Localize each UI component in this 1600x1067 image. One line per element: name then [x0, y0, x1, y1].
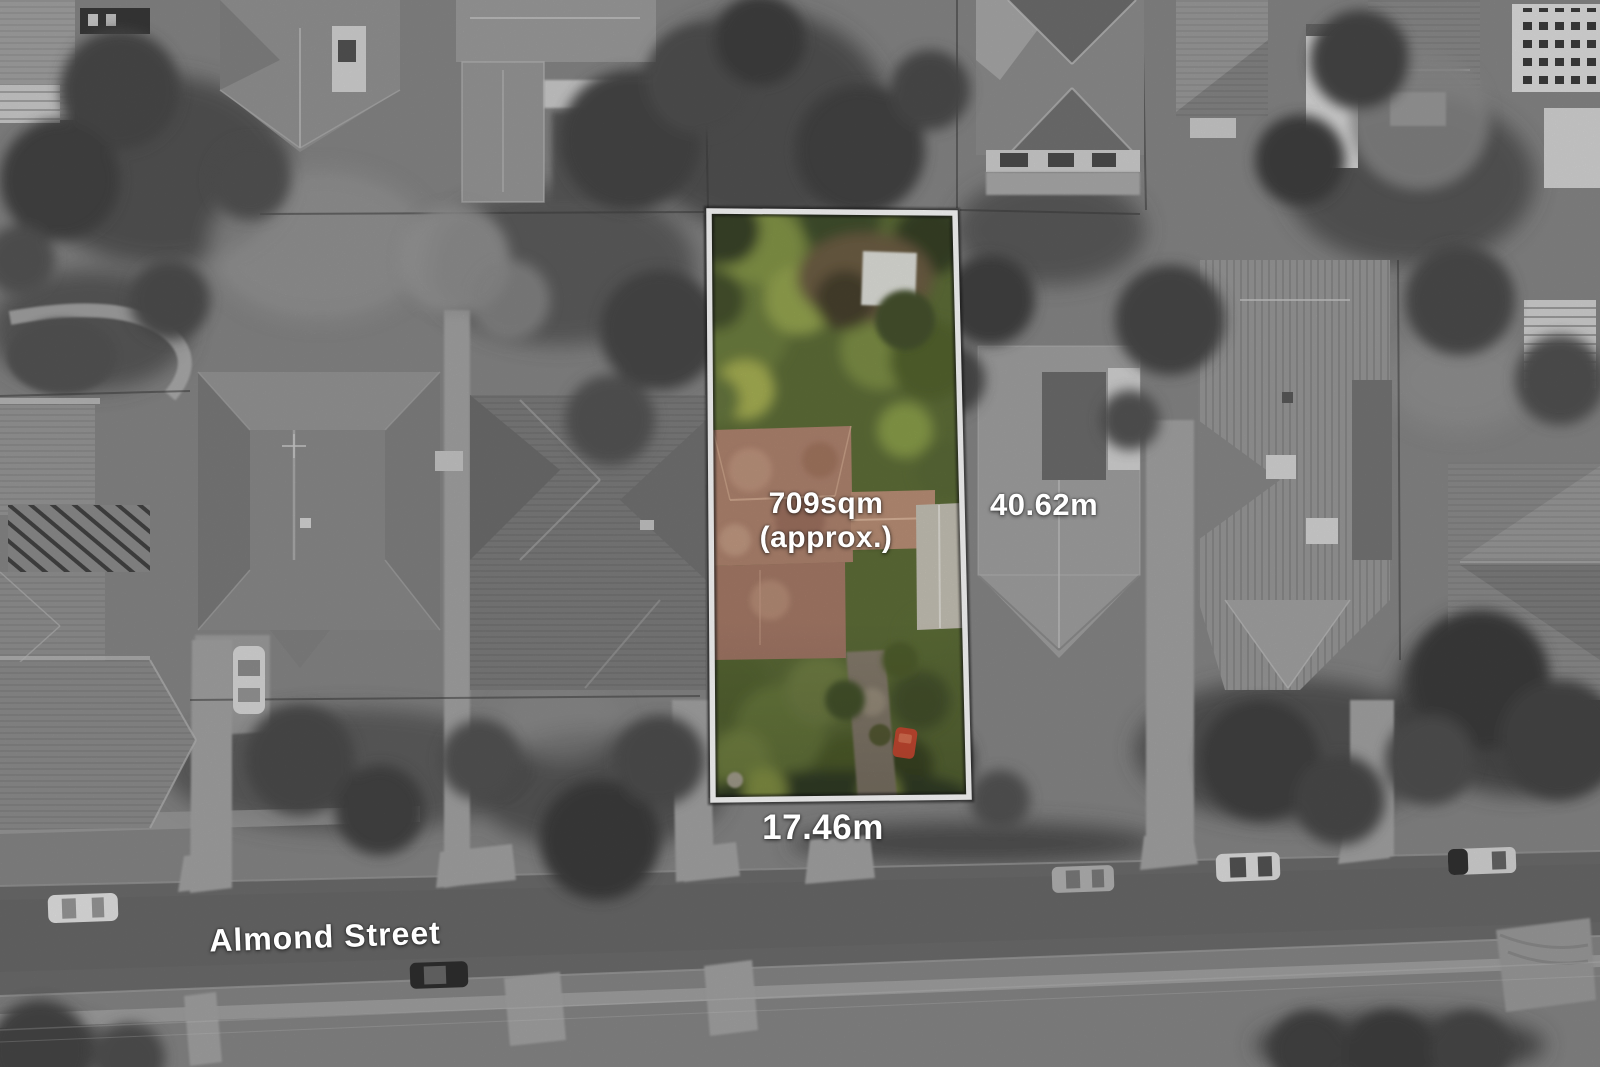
photo-grain [0, 0, 1600, 1067]
aerial-scene [0, 0, 1600, 1067]
aerial-property-photo: 709sqm (approx.) 40.62m 17.46m Almond St… [0, 0, 1600, 1067]
